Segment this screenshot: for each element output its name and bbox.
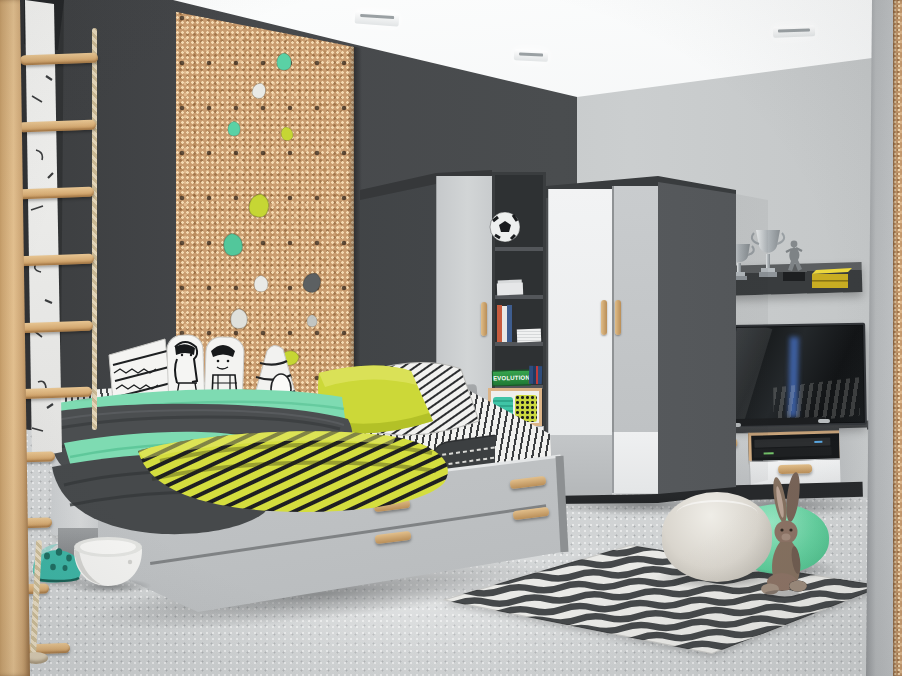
right-pillar-cork-edge	[893, 0, 902, 676]
beige-pouf-top-seam	[676, 500, 758, 528]
room-photo: EVOLUTION	[0, 0, 902, 676]
ladder-rope-rail	[92, 28, 97, 430]
white-bowl-toy	[66, 528, 150, 592]
plush-bunny	[752, 468, 834, 608]
bunny-body	[761, 471, 807, 598]
